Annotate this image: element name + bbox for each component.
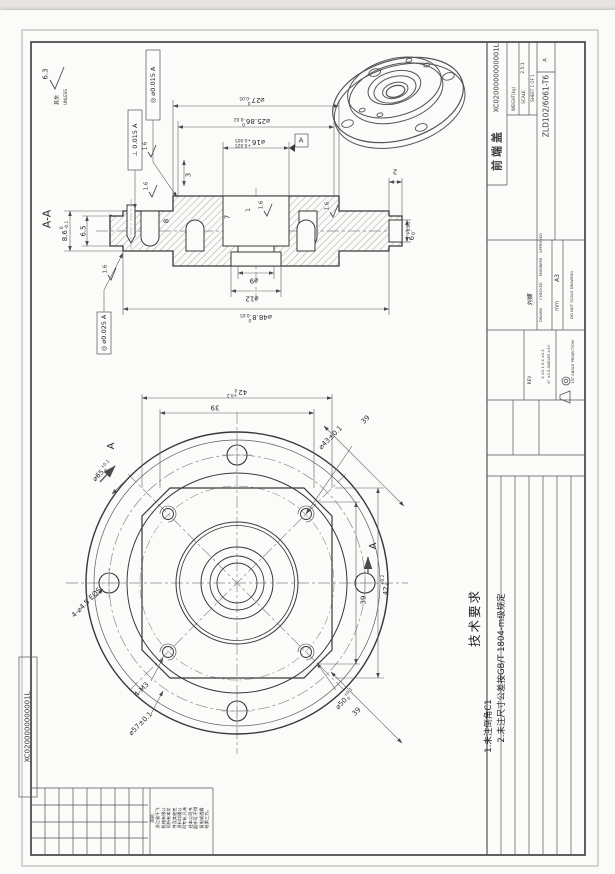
titleblock-no-scale: DO NOT SCALE DRAWING [570,271,574,319]
notice-line: 司专有,凡未 [183,807,187,829]
projection-symbol [560,377,570,403]
dim-7-bore: 7 [225,215,232,219]
notice-line: 浙江省千飞 [156,808,160,829]
tech-note-1: 1.未注倒角C1 [485,699,494,752]
roughness-1-6: 1.6 [259,201,265,210]
drawing-linework [0,0,615,874]
left-sheet-code: XC0200000000001L [25,692,32,763]
notice-line: 给第三方。 [205,808,209,829]
roughness-1-6: 1.6 [103,265,109,274]
titleblock-signature: 刘横 [528,294,534,306]
titleblock-scale-value: 2.5:1 [522,62,527,74]
notice-line: 司所有本文 [167,808,171,829]
dim-42-right: 42+0.20 [382,575,392,595]
dim-d12: ⌀12 [245,295,258,302]
dim-d16: ⌀16+0.025+0.005 [235,136,265,146]
titleblock-scale-label: SCALE [522,90,526,103]
titleblock-size-value: A3 [555,274,561,282]
dim-42-top: 42+0.20 [227,386,247,396]
titleblock-material: ZLD102/6061-T6 [542,75,550,137]
dim-d48-8: ⌀48.80-0.05 [240,311,272,321]
dim-2: 2 [393,168,397,175]
dim-8: 8 [164,219,171,223]
dim-6: 6+0.050 [408,222,418,241]
titleblock-checked-label: CHECKED [540,282,544,299]
dim-3: 3 [186,173,193,177]
titleblock-drawing-no: XC0200000000001L [494,44,501,113]
titleblock-units-value: mm [556,301,561,311]
dim-d25-86: ⌀25.860-0.02 [234,115,270,125]
titleblock-drawn-label: DRAWN [540,308,544,322]
dim-39-right: 39 [361,596,368,605]
titleblock-rev-label: REV [528,376,532,384]
dim-6-5: 6.5 [81,225,88,236]
tech-notes-heading: 技术要求 [469,589,482,647]
roughness-1-6: 1.6 [325,202,331,211]
surface-note-cn: 其余 [56,95,61,105]
dim-d9: ⌀9 [250,277,259,284]
dim-1: 1 [246,208,252,212]
titleblock-tol-line1: X ±0.1 X.X ±0.2 [542,349,546,378]
isometric-view [322,42,475,163]
titleblock-rev-value: A [544,58,549,61]
dim-d27: ⌀270-0.05 [239,94,264,104]
fcf-concentricity-1: ◎ ⌀0.015 A [150,67,157,104]
section-arrow-label: A [369,543,379,550]
titleblock-approved-label: APPROVED [540,233,544,253]
section-view [96,188,412,302]
drawing-stage: XC0200000000001L XC0200000000001L 前端盖 WE… [0,0,615,874]
roughness-1-6: 1.6 [144,182,150,191]
dim-8-6: 8.60-0.1 [61,221,71,242]
surface-note-en: UNLESS [64,89,68,105]
titleblock-engineer-label: ENGINEER [540,258,544,277]
titleblock-weight-label: WEIGHT(kg) [512,87,516,111]
dim-7-rim: 7 [110,214,117,218]
fcf-concentricity-2: ◎ ⌀0.025 A [101,315,108,352]
surface-roughness-value: 6.3 [43,68,50,79]
fcf-perpendicularity: ⊥ 0.015 A [132,124,139,157]
datum-a-label: A [299,138,304,145]
notice-line: 面许可,不得 [194,807,198,829]
circular-view [66,412,408,754]
section-title: A-A [42,210,53,229]
titleblock-projection: 1ST ANGLE PROJECTION [572,340,576,383]
roughness-1-6: 1.6 [143,142,149,151]
titleblock-tol-line2: X° ±0.5 ANGLES ±30' [548,344,552,383]
section-arrow-label: A [107,443,117,450]
dim-39-top: 39 [211,404,220,411]
titleblock-sheet-label: SHEET 1 OF 1 [531,74,535,101]
titleblock-part-name: 前端盖 [492,129,503,171]
tech-note-2: 2.未注尺寸公差按GB/T 1804-m级规定 [498,593,507,742]
